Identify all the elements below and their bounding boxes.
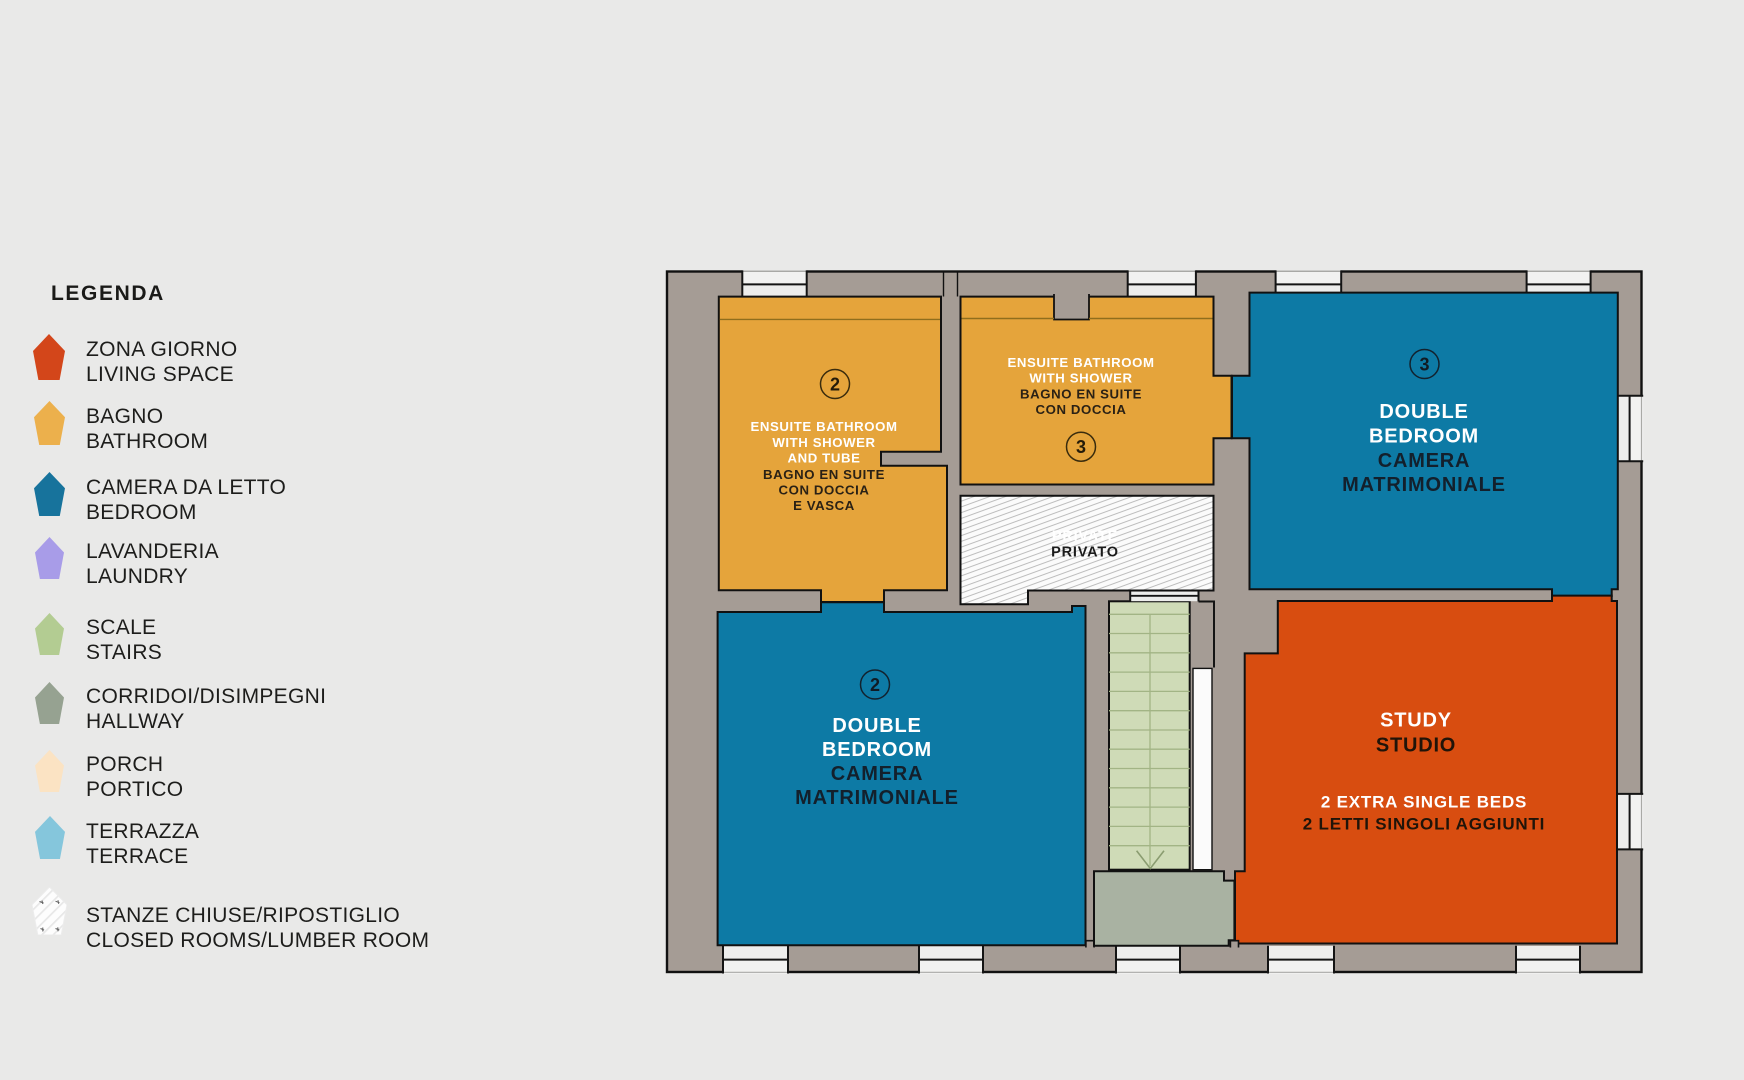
svg-text:CAMERA: CAMERA [831, 763, 924, 785]
svg-text:PRIVATO: PRIVATO [1051, 545, 1119, 561]
svg-text:CON DOCCIA: CON DOCCIA [779, 483, 870, 498]
svg-text:ENSUITE BATHROOM: ENSUITE BATHROOM [1007, 355, 1154, 370]
svg-text:BEDROOM: BEDROOM [1369, 426, 1479, 448]
svg-text:2 EXTRA SINGLE BEDS: 2 EXTRA SINGLE BEDS [1321, 793, 1527, 812]
svg-text:MATRIMONIALE: MATRIMONIALE [795, 787, 959, 809]
svg-text:2 LETTI SINGOLI AGGIUNTI: 2 LETTI SINGOLI AGGIUNTI [1303, 815, 1545, 834]
svg-text:DOUBLE: DOUBLE [832, 715, 921, 737]
svg-text:PRIVATE: PRIVATE [1052, 529, 1118, 545]
svg-text:AND TUBE: AND TUBE [788, 451, 861, 466]
svg-text:2: 2 [870, 675, 880, 695]
svg-text:ENSUITE BATHROOM: ENSUITE BATHROOM [750, 419, 897, 434]
svg-text:3: 3 [1419, 355, 1429, 375]
svg-text:2: 2 [830, 375, 840, 395]
svg-text:BEDROOM: BEDROOM [822, 739, 932, 761]
svg-text:E VASCA: E VASCA [793, 498, 855, 513]
svg-text:CAMERA: CAMERA [1378, 450, 1471, 472]
svg-text:MATRIMONIALE: MATRIMONIALE [1342, 474, 1506, 496]
svg-text:STUDY: STUDY [1380, 710, 1452, 732]
svg-text:BAGNO EN SUITE: BAGNO EN SUITE [1020, 386, 1142, 401]
svg-text:CON DOCCIA: CON DOCCIA [1036, 402, 1127, 417]
svg-text:WITH SHOWER: WITH SHOWER [1029, 371, 1132, 386]
svg-text:3: 3 [1076, 437, 1086, 457]
svg-text:WITH SHOWER: WITH SHOWER [772, 435, 875, 450]
svg-text:BAGNO EN SUITE: BAGNO EN SUITE [763, 467, 885, 482]
svg-text:DOUBLE: DOUBLE [1379, 401, 1468, 423]
svg-text:STUDIO: STUDIO [1376, 735, 1456, 757]
